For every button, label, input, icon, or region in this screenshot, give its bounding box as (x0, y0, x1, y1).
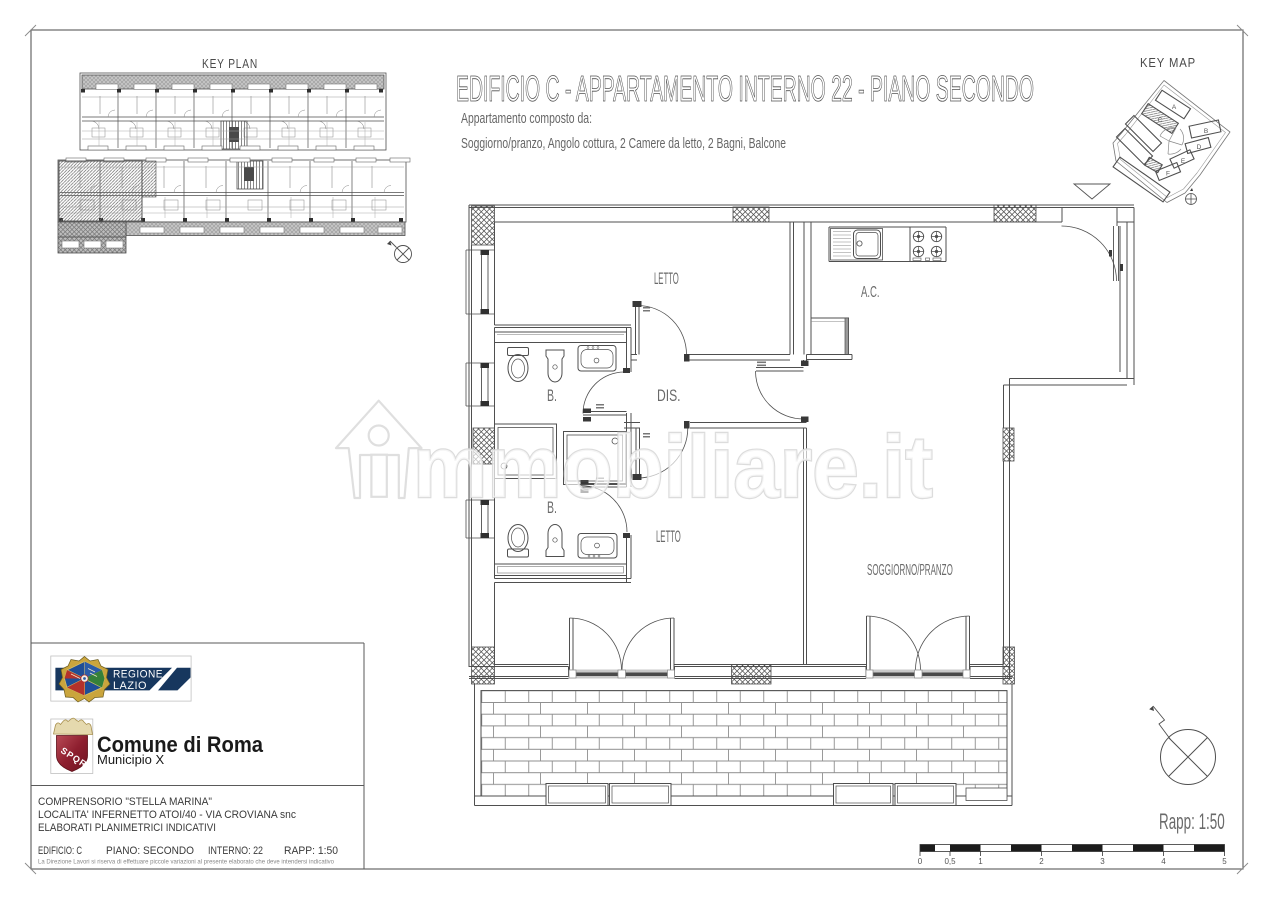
svg-text:Appartamento composto da:: Appartamento composto da: (461, 111, 592, 127)
svg-text:COMPRENSORIO "STELLA MARINA": COMPRENSORIO "STELLA MARINA" (38, 796, 212, 808)
svg-text:EDIFICIO C - APPARTAMENTO INTE: EDIFICIO C - APPARTAMENTO INTERNO 22 - P… (456, 68, 1034, 109)
svg-text:La Direzione Lavori si riserva: La Direzione Lavori si riserva di effett… (38, 859, 334, 866)
svg-text:A.C.: A.C. (861, 283, 880, 301)
svg-text:PIANO: SECONDO: PIANO: SECONDO (106, 845, 194, 857)
svg-text:1: 1 (978, 857, 983, 866)
svg-text:Municipio X: Municipio X (97, 752, 165, 767)
svg-text:B: B (1204, 128, 1208, 135)
svg-text:E: E (1181, 158, 1186, 165)
svg-text:C: C (1158, 117, 1163, 124)
svg-text:DIS.: DIS. (657, 385, 681, 404)
svg-text:2: 2 (1039, 857, 1044, 866)
svg-text:LAZIO: LAZIO (113, 680, 147, 692)
svg-text:ELABORATI PLANIMETRICI INDICAT: ELABORATI PLANIMETRICI INDICATIVI (38, 822, 216, 834)
svg-text:REGIONE: REGIONE (113, 669, 163, 681)
svg-text:RAPP: 1:50: RAPP: 1:50 (284, 845, 338, 857)
svg-text:Rapp: 1:50: Rapp: 1:50 (1159, 809, 1225, 834)
svg-text:3: 3 (1100, 857, 1105, 866)
svg-text:KEY MAP: KEY MAP (1140, 55, 1196, 70)
svg-text:0,5: 0,5 (944, 857, 956, 866)
svg-text:5: 5 (1222, 857, 1227, 866)
svg-text:F: F (1166, 171, 1170, 178)
svg-text:SOGGIORNO/PRANZO: SOGGIORNO/PRANZO (867, 560, 953, 578)
svg-text:LETTO: LETTO (656, 526, 681, 545)
svg-text:KEY PLAN: KEY PLAN (202, 56, 258, 71)
svg-text:LETTO: LETTO (654, 268, 679, 287)
svg-text:mmobiliare.it: mmobiliare.it (413, 417, 933, 516)
svg-text:A: A (1172, 104, 1177, 111)
svg-text:EDIFICIO: C: EDIFICIO: C (38, 845, 82, 857)
svg-text:B.: B. (547, 385, 557, 404)
svg-text:0: 0 (918, 857, 923, 866)
svg-text:D: D (1197, 144, 1202, 151)
svg-text:Soggiorno/pranzo, Angolo cottu: Soggiorno/pranzo, Angolo cottura, 2 Came… (461, 136, 786, 152)
svg-text:4: 4 (1161, 857, 1166, 866)
svg-text:INTERNO: 22: INTERNO: 22 (208, 845, 263, 857)
svg-text:LOCALITA' INFERNETTO ATOI/40 -: LOCALITA' INFERNETTO ATOI/40 - VIA CROVI… (38, 809, 297, 821)
